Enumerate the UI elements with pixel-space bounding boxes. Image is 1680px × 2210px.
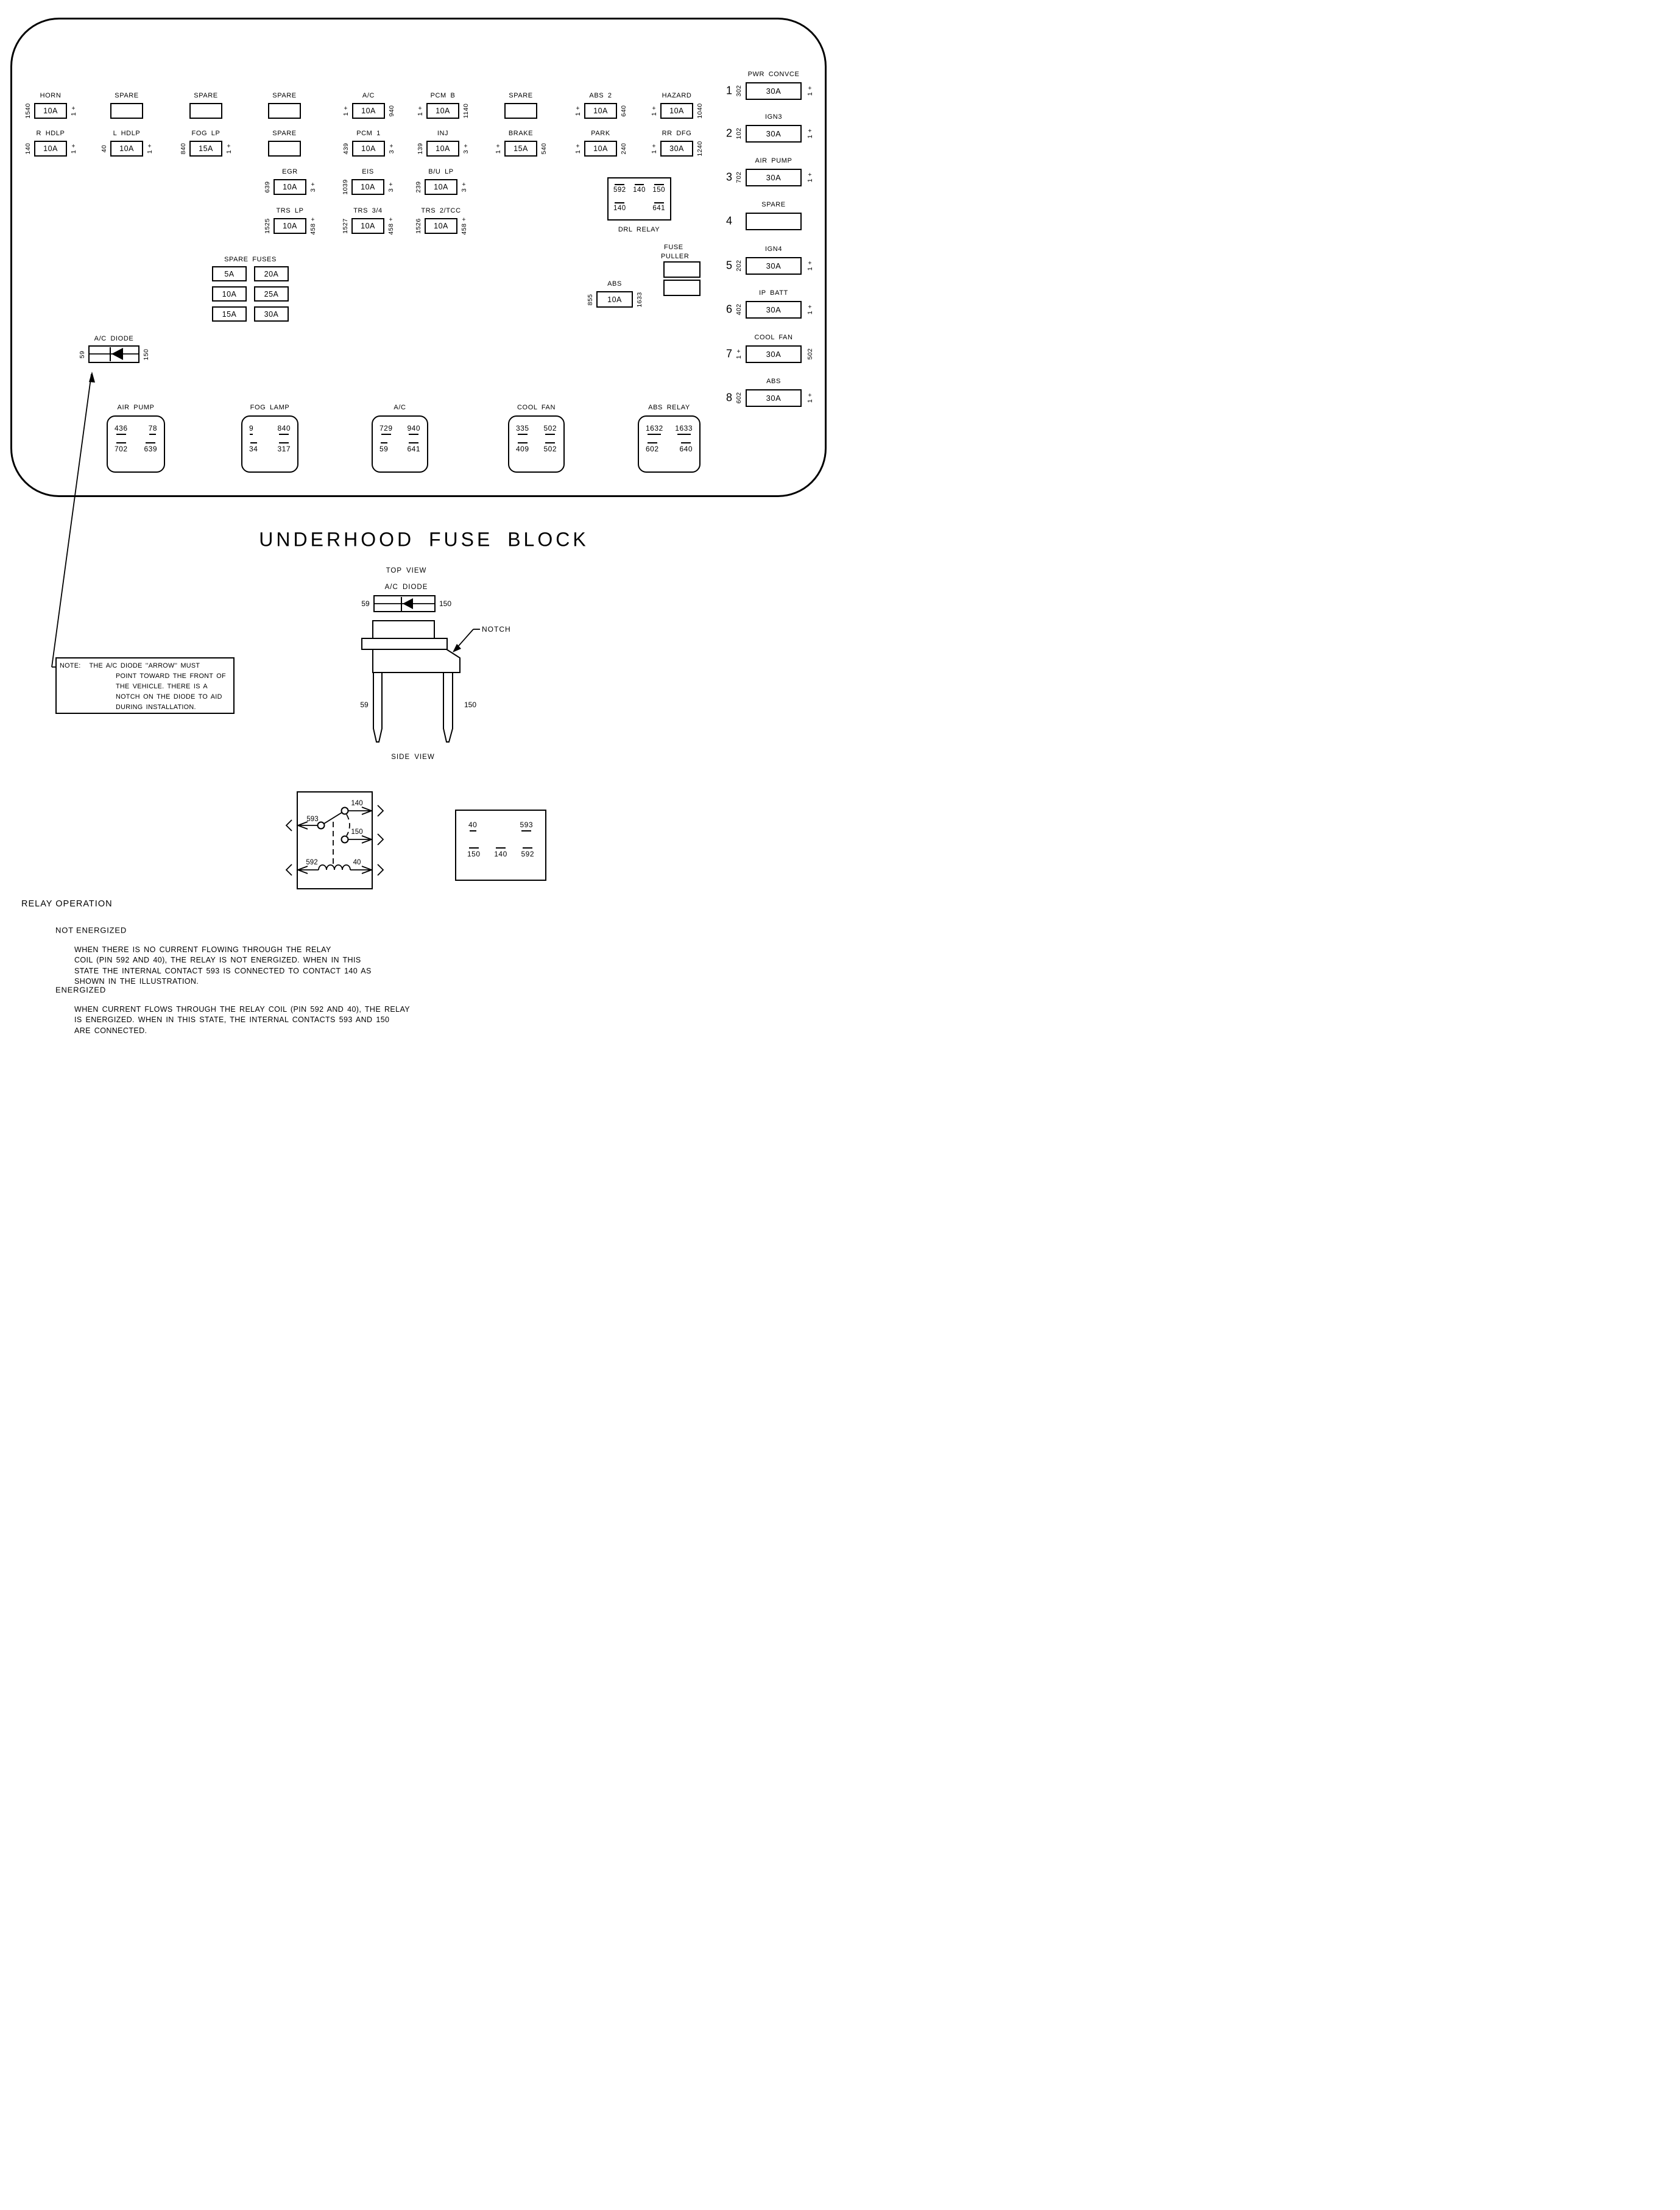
fuse-amp: 10A — [361, 107, 376, 115]
fuse-label: RR DFG — [662, 130, 692, 137]
fuse-pin-right: 640 — [620, 105, 627, 116]
fuse-amp: 10A — [669, 107, 684, 115]
schematic-pin-label: 40 — [353, 859, 361, 866]
relay-pins-bottom: 602640 — [646, 445, 693, 453]
relay-operation-line: SHOWN IN THE ILLUSTRATION. — [74, 977, 199, 986]
right-item-pin-right: 1 + — [806, 172, 814, 182]
relay-operation-section-1-title: NOT ENERGIZED — [55, 926, 127, 935]
fuse-amp: 10A — [119, 144, 134, 153]
right-item-amp: 30A — [766, 173, 782, 182]
fuse-pin-right: 3 + — [388, 144, 395, 154]
relay-box: 335502409502 — [508, 415, 565, 473]
fuse-pin-left: 639 — [264, 181, 271, 192]
right-item-amp: 30A — [766, 305, 782, 314]
relay-pin: 702 — [115, 445, 128, 453]
fuse-label: SPARE — [194, 92, 217, 99]
fuse-label: PCM B — [431, 92, 456, 99]
relay-label: A/C — [394, 404, 406, 411]
fuse-label: PARK — [591, 130, 610, 137]
right-item-label: AIR PUMP — [755, 157, 792, 164]
fuse-box: 15A — [504, 141, 537, 157]
relay-pins-top: 16321633 — [646, 424, 693, 432]
fuse-box — [268, 141, 301, 157]
fuse-label: SPARE — [115, 92, 138, 99]
relay-box: 72994059641 — [372, 415, 428, 473]
relay-pin: 502 — [543, 424, 557, 432]
fuse-puller-slot-2 — [663, 280, 701, 296]
right-item-number: 3 — [726, 171, 732, 184]
fuse-box: 10A — [274, 218, 306, 234]
fuse-pin-left: 239 — [415, 181, 422, 192]
relay-operation-line: STATE THE INTERNAL CONTACT 593 IS CONNEC… — [74, 967, 372, 975]
fuse-box — [268, 103, 301, 119]
pin-box-pin: 140 — [494, 850, 507, 858]
fuse-pin-left: 1540 — [24, 103, 32, 118]
fuse-amp: 10A — [43, 107, 58, 115]
underhood-fuse-block-diagram: HORN10A15401 +SPARESPARESPAREA/C10A1 +94… — [0, 0, 840, 1105]
fuse-amp: 10A — [283, 183, 297, 191]
relay-box: 16321633602640 — [638, 415, 701, 473]
relay-operation-line: WHEN THERE IS NO CURRENT FLOWING THROUGH… — [74, 945, 331, 954]
relay-pins-bottom: 409502 — [516, 445, 557, 453]
fuse-pin-left: 1 + — [574, 144, 582, 154]
fuse-amp: 10A — [361, 144, 376, 153]
fuse-label: PCM 1 — [356, 130, 381, 137]
right-item-number: 1 — [726, 85, 732, 97]
schematic-pin-label: 140 — [351, 800, 362, 807]
fuse-label: BRAKE — [509, 130, 533, 137]
fuse-amp: 10A — [43, 144, 58, 153]
relay-operation-line: WHEN CURRENT FLOWS THROUGH THE RELAY COI… — [74, 1005, 410, 1014]
relay-operation-section-2-title: ENERGIZED — [55, 986, 106, 995]
fuse-pin-right: 540 — [540, 143, 548, 154]
relay-pins-top: 335502 — [516, 424, 557, 432]
fuse-label: SPARE — [272, 130, 296, 137]
fuse-amp: 10A — [434, 183, 448, 191]
relay-pin: 78 — [149, 424, 157, 432]
fuse-box: 10A — [352, 103, 385, 119]
right-item-box: 30A — [746, 389, 802, 407]
fuse-amp: 10A — [361, 222, 375, 230]
right-item-number: 5 — [726, 259, 732, 272]
drl-pin: 592 — [613, 186, 626, 194]
fuse-label: R HDLP — [37, 130, 65, 137]
fuse-pin-left: 1527 — [342, 218, 349, 233]
pin-box-pin: 593 — [520, 821, 533, 829]
right-item-pin-left: 602 — [735, 392, 743, 403]
fuse-box: 10A — [584, 103, 617, 119]
spare-fuse-amp: 5A — [224, 270, 234, 278]
fuse-pin-left: 1 + — [651, 106, 658, 116]
pin-box-pin: 150 — [467, 850, 481, 858]
relay-pin: 502 — [543, 445, 557, 453]
fuse-box: 10A — [425, 218, 457, 234]
fuse-box: 10A — [660, 103, 693, 119]
fuse-pin-right: 1 + — [146, 144, 154, 154]
fuse-box: 10A — [34, 103, 67, 119]
fuse-label: EGR — [282, 168, 298, 175]
note-text: THE A/C DIODE ''ARROW'' MUST — [90, 662, 200, 669]
spare-fuse-amp: 30A — [264, 310, 279, 319]
fuse-pin-left: 855 — [587, 294, 594, 305]
fuse-amp: 10A — [593, 144, 608, 153]
fuse-pin-right: 1040 — [696, 103, 704, 118]
right-item-amp: 30A — [766, 129, 782, 138]
fuse-pin-left: 1039 — [342, 179, 349, 194]
side-view-pin-right: 150 — [464, 701, 476, 709]
relay-label: AIR PUMP — [118, 404, 155, 411]
fuse-pin-right: 3 + — [387, 182, 395, 192]
fuse-box: 10A — [425, 179, 457, 195]
pin-box-pin: 40 — [468, 821, 477, 829]
spare-fuse-box: 15A — [212, 306, 247, 322]
relay-operation-line: ARE CONNECTED. — [74, 1026, 147, 1035]
fuse-box: 10A — [352, 141, 385, 157]
fuse-pin-left: 1 + — [495, 144, 502, 154]
fuse-pin-right: 3 + — [462, 144, 470, 154]
fuse-amp: 10A — [593, 107, 608, 115]
fuse-box: 10A — [426, 141, 459, 157]
notch-leader-arrow — [453, 629, 480, 652]
drl-pin: 150 — [652, 186, 665, 194]
fuse-label: TRS LP — [276, 207, 303, 214]
relay-pin: 9 — [249, 424, 253, 432]
fuse-amp: 10A — [436, 107, 450, 115]
fuse-pin-right: 458 + — [309, 217, 317, 235]
fuse-pin-right: 1 + — [225, 144, 233, 154]
fuse-amp: 30A — [669, 144, 684, 153]
fuse-label: HORN — [40, 92, 62, 99]
right-item-number: 8 — [726, 392, 732, 404]
fuse-box: 10A — [274, 179, 306, 195]
fuse-box: 10A — [596, 291, 633, 308]
fuse-label: SPARE — [509, 92, 532, 99]
ac-diode-label: A/C DIODE — [94, 335, 134, 342]
relay-pin: 1633 — [675, 424, 693, 432]
top-view-diode-body — [373, 595, 436, 612]
relay-pin: 729 — [379, 424, 393, 432]
schematic-pin-label: 593 — [306, 816, 318, 823]
fuse-amp: 15A — [514, 144, 528, 153]
fuse-pin-right: 458 + — [387, 217, 395, 235]
fuse-box: 10A — [584, 141, 617, 157]
spare-fuse-amp: 20A — [264, 270, 279, 278]
fuse-label: INJ — [437, 130, 448, 137]
relay-pin: 335 — [516, 424, 529, 432]
spare-fuse-box: 20A — [254, 266, 289, 281]
fuse-pin-left: 1 + — [342, 106, 350, 116]
spare-fuse-amp: 10A — [222, 290, 237, 298]
relay-operation-line: IS ENERGIZED. WHEN IN THIS STATE, THE IN… — [74, 1015, 389, 1024]
right-item-pin-left: 702 — [735, 171, 743, 183]
drl-relay-label: DRL RELAY — [618, 226, 660, 233]
drl-pin: 140 — [613, 205, 626, 212]
pin-box-pin: 592 — [521, 850, 534, 858]
fuse-box — [110, 103, 143, 119]
relay-pin: 840 — [277, 424, 291, 432]
fuse-box: 10A — [426, 103, 459, 119]
fuse-pin-right: 940 — [388, 105, 395, 116]
fuse-pin-right: 1140 — [462, 104, 470, 119]
relay-pin: 940 — [407, 424, 420, 432]
relay-pin-box: 40593 150140592 — [455, 810, 546, 881]
right-item-box: 30A — [746, 82, 802, 100]
relay-box: 43678702639 — [107, 415, 165, 473]
right-item-pin-right: 1 + — [806, 261, 814, 270]
right-item-pin-right: 1 + — [806, 86, 814, 96]
right-item-pin-right: 502 — [806, 348, 814, 359]
notch-label: NOTCH — [482, 625, 511, 634]
drl-relay-box: 592140150 140641 — [607, 177, 671, 221]
note-line: DURING INSTALLATION. — [116, 704, 196, 711]
right-item-pin-left: 202 — [735, 259, 743, 271]
right-item-amp: 30A — [766, 86, 782, 96]
fuse-pin-left: 840 — [180, 143, 187, 154]
fuse-pin-right: 240 — [620, 143, 627, 154]
schematic-pin-label: 592 — [306, 859, 317, 866]
fuse-amp: 10A — [434, 222, 448, 230]
fuse-amp: 10A — [361, 183, 375, 191]
fuse-amp: 10A — [283, 222, 297, 230]
fuse-box: 10A — [351, 218, 384, 234]
right-item-label: IP BATT — [759, 289, 788, 297]
relay-pins-bottom: 34317 — [249, 445, 291, 453]
relay-pins-top: 43678 — [115, 424, 157, 432]
note-prefix: NOTE: — [60, 662, 81, 669]
fuse-puller-label-line1: FUSE — [664, 244, 683, 251]
fuse-label: HAZARD — [662, 92, 692, 99]
side-view-label: SIDE VIEW — [391, 754, 434, 761]
fuse-label: FOG LP — [192, 130, 221, 137]
right-item-box — [746, 213, 802, 230]
top-view-pin-left: 59 — [361, 599, 369, 608]
right-item-number: 4 — [726, 215, 732, 228]
fuse-pin-right: 1 + — [70, 144, 77, 154]
fuse-pin-left: 1526 — [415, 218, 422, 233]
fuse-puller-slot-1 — [663, 261, 701, 278]
fuse-puller-label-line2: PULLER — [661, 253, 689, 260]
right-item-number: 6 — [726, 303, 732, 316]
relay-pin: 1632 — [646, 424, 663, 432]
right-item-box: 30A — [746, 125, 802, 143]
relay-pin: 641 — [407, 445, 420, 453]
note-line: THE VEHICLE. THERE IS A — [116, 683, 208, 690]
fuse-pin-left: 1 + — [651, 144, 658, 154]
ac-diode-body — [88, 345, 139, 363]
right-item-label: IGN4 — [765, 245, 782, 253]
fuse-label: A/C — [362, 92, 375, 99]
right-item-pin-left: 302 — [735, 85, 743, 96]
fuse-box: 15A — [189, 141, 222, 157]
right-item-label: IGN3 — [765, 113, 782, 121]
relay-pins-top: 729940 — [379, 424, 420, 432]
fuse-pin-left: 40 — [101, 145, 108, 153]
fuse-label: TRS 3/4 — [353, 207, 383, 214]
right-item-pin-left: 1 + — [735, 349, 743, 359]
fuse-pin-left: 439 — [342, 143, 350, 154]
fuse-pin-left: 140 — [24, 143, 32, 154]
relay-pin: 436 — [115, 424, 128, 432]
right-item-box: 30A — [746, 345, 802, 363]
fuse-box — [189, 103, 222, 119]
relay-operation-heading: RELAY OPERATION — [21, 899, 113, 909]
fuse-pin-left: 1 + — [417, 106, 424, 116]
drl-pin: 140 — [633, 186, 646, 194]
note-line: POINT TOWARD THE FRONT OF — [116, 673, 226, 680]
right-item-label: SPARE — [761, 201, 785, 208]
relay-pin: 640 — [679, 445, 693, 453]
relay-pins-bottom: 702639 — [115, 445, 157, 453]
fuse-label: EIS — [362, 168, 374, 175]
drl-pin: 641 — [652, 205, 665, 212]
fuse-box: 30A — [660, 141, 693, 157]
fuse-pin-right: 1240 — [696, 141, 704, 156]
fuse-label: ABS 2 — [589, 92, 612, 99]
right-item-pin-right: 1 + — [806, 393, 814, 403]
spare-fuse-amp: 25A — [264, 290, 279, 298]
fuse-box: 10A — [351, 179, 384, 195]
side-view-outline — [362, 621, 460, 742]
fuse-pin-left: 139 — [417, 143, 424, 154]
right-item-pin-right: 1 + — [806, 305, 814, 314]
spare-fuse-amp: 15A — [222, 310, 237, 319]
fuse-box: 10A — [34, 141, 67, 157]
fuse-label: TRS 2/TCC — [421, 207, 461, 214]
fuse-amp: 15A — [199, 144, 213, 153]
fuse-amp: 10A — [436, 144, 450, 153]
relay-pin: 602 — [646, 445, 659, 453]
right-item-pin-right: 1 + — [806, 129, 814, 138]
fuse-pin-right: 1633 — [636, 292, 643, 307]
note-line: NOTCH ON THE DIODE TO AID — [116, 693, 222, 701]
fuse-pin-left: 1525 — [264, 218, 271, 233]
right-item-pin-left: 102 — [735, 127, 743, 139]
right-item-label: ABS — [766, 378, 781, 385]
schematic-pin-label: 150 — [351, 828, 362, 836]
right-item-box: 30A — [746, 301, 802, 319]
relay-label: FOG LAMP — [250, 404, 290, 411]
relay-pins-bottom: 59641 — [379, 445, 420, 453]
fuse-box — [504, 103, 537, 119]
relay-label: ABS RELAY — [648, 404, 690, 411]
fuse-pin-right: 458 + — [461, 217, 468, 235]
fuse-pin-right: 3 + — [461, 182, 468, 192]
ac-diode-pin-right: 150 — [143, 348, 150, 360]
top-view-diode-label: A/C DIODE — [385, 584, 428, 591]
relay-pin: 34 — [249, 445, 258, 453]
relay-pins-top: 9840 — [249, 424, 291, 432]
fuse-pin-right: 3 + — [309, 182, 317, 192]
right-item-box: 30A — [746, 257, 802, 275]
ac-diode-pin-left: 59 — [79, 351, 86, 359]
top-view-label: TOP VIEW — [386, 567, 427, 574]
spare-fuse-box: 30A — [254, 306, 289, 322]
right-item-number: 7 — [726, 348, 732, 361]
fuse-box: 10A — [110, 141, 143, 157]
right-item-amp: 30A — [766, 261, 782, 270]
right-item-number: 2 — [726, 127, 732, 140]
spare-fuse-box: 10A — [212, 286, 247, 302]
note-line-1: NOTE:THE A/C DIODE ''ARROW'' MUST — [60, 662, 200, 669]
right-item-pin-left: 402 — [735, 303, 743, 315]
relay-pin: 59 — [379, 445, 388, 453]
relay-label: COOL FAN — [517, 404, 556, 411]
right-item-label: COOL FAN — [754, 334, 792, 341]
right-item-amp: 30A — [766, 394, 782, 403]
spare-fuse-box: 5A — [212, 266, 247, 281]
right-item-amp: 30A — [766, 350, 782, 359]
top-view-pin-right: 150 — [439, 599, 451, 608]
relay-pin: 639 — [144, 445, 157, 453]
page-title: UNDERHOOD FUSE BLOCK — [259, 529, 588, 551]
right-item-box: 30A — [746, 169, 802, 186]
relay-box: 984034317 — [241, 415, 298, 473]
fuse-pin-right: 1 + — [70, 106, 77, 116]
fuse-label: ABS — [607, 280, 622, 288]
fuse-label: SPARE — [272, 92, 296, 99]
fuse-pin-left: 1 + — [574, 106, 582, 116]
fuse-amp: 10A — [607, 295, 622, 304]
spare-fuse-box: 25A — [254, 286, 289, 302]
fuse-label: L HDLP — [113, 130, 141, 137]
right-item-label: PWR CONVCE — [748, 71, 800, 78]
spare-fuses-title: SPARE FUSES — [224, 256, 277, 263]
relay-operation-line: COIL (PIN 592 AND 40), THE RELAY IS NOT … — [74, 956, 361, 964]
side-view-pin-left: 59 — [360, 701, 368, 709]
relay-pin: 409 — [516, 445, 529, 453]
relay-pin: 317 — [277, 445, 291, 453]
fuse-label: B/U LP — [428, 168, 453, 175]
